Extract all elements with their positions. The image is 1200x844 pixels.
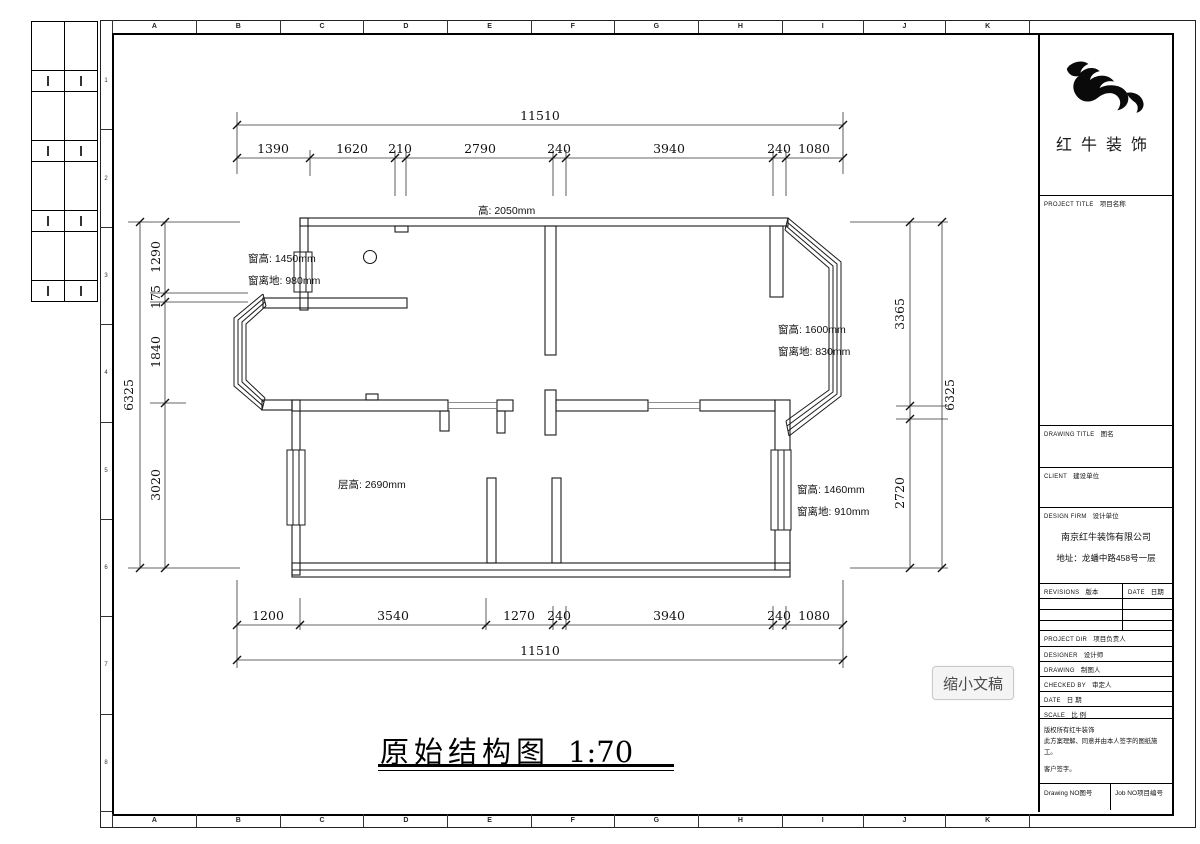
label-date-col-en: DATE [1128, 590, 1145, 596]
label-checked-by-zh: 审定人 [1092, 682, 1112, 689]
client-cell: CLIENT建设单位 [1040, 467, 1172, 507]
dim-label: 240 [767, 608, 791, 623]
label-date-en: DATE [1044, 698, 1061, 704]
label-designer-en: DESIGNER [1044, 653, 1078, 659]
dim-label: 11510 [520, 643, 560, 658]
label-drawing-zh: 制图人 [1081, 667, 1101, 674]
dim-label: 3365 [892, 298, 907, 330]
label-drawing-no-en: Drawing NO [1044, 790, 1079, 797]
dim-label: 3940 [653, 608, 685, 623]
dim-label: 2790 [464, 141, 496, 156]
checked-by-row: CHECKED BY审定人 [1040, 676, 1172, 691]
project-title-cell: PROJECT TITLE项目名称 [1040, 195, 1172, 425]
revision-row [1040, 598, 1172, 599]
label-revisions-zh: 版本 [1085, 589, 1098, 596]
dimension-labels: 11510 1390 1620 210 2790 240 3940 240 10… [121, 108, 957, 658]
dim-label: 175 [148, 285, 163, 309]
shrink-document-button[interactable]: 缩小文稿 [932, 666, 1014, 700]
label-date-zh: 日 期 [1067, 697, 1082, 704]
dim-label: 240 [547, 141, 571, 156]
label-job-no-zh: 项目编号 [1137, 790, 1163, 797]
drawing-title-cell: DRAWING TITLE图名 [1040, 425, 1172, 467]
label-drawing-en: DRAWING [1044, 668, 1075, 674]
label-project-dir-en: PROJECT DIR [1044, 637, 1087, 643]
label-client-en: CLIENT [1044, 474, 1067, 480]
dim-label: 1840 [148, 336, 163, 368]
title-block: 红牛装饰 PROJECT TITLE项目名称 DRAWING TITLE图名 C… [1038, 33, 1172, 812]
label-drawing-title-zh: 图名 [1101, 431, 1114, 438]
plan-walls [262, 218, 790, 577]
label-job-no-en: Job NO [1115, 790, 1137, 797]
project-dir-row: PROJECT DIR项目负责人 [1040, 630, 1172, 646]
dim-label: 1390 [257, 141, 289, 156]
brand-name: 红牛装饰 [1040, 131, 1172, 155]
dim-label: 240 [767, 141, 791, 156]
copyright-line: 版权所有红牛装饰 [1044, 725, 1169, 736]
company-address: 地址：龙蟠中路458号一层 [1040, 552, 1172, 564]
dim-label: 1270 [503, 608, 535, 623]
dim-label: 6325 [121, 379, 136, 411]
dim-label: 3540 [377, 608, 409, 623]
title-underline-thick [378, 764, 674, 767]
dim-label: 1290 [148, 241, 163, 273]
dim-label: 1080 [798, 141, 830, 156]
dim-label: 11510 [520, 108, 560, 123]
scale-row: SCALE比 例 [1040, 706, 1172, 718]
dimension-ticks [136, 121, 946, 664]
title-underline-thin [378, 770, 674, 771]
label-design-firm-en: DESIGN FIRM [1044, 514, 1087, 520]
column-circle-symbol [364, 251, 377, 264]
label-design-firm-zh: 设计单位 [1093, 513, 1119, 520]
label-drawing-no-zh: 图号 [1079, 790, 1092, 797]
label-project-title-en: PROJECT TITLE [1044, 202, 1094, 208]
dim-label: 1080 [798, 608, 830, 623]
dim-label: 2720 [892, 477, 907, 509]
dim-label: 210 [388, 141, 412, 156]
label-drawing-title-en: DRAWING TITLE [1044, 432, 1095, 438]
drawing-row: DRAWING制图人 [1040, 661, 1172, 676]
floor-plan: 11510 1390 1620 210 2790 240 3940 240 10… [0, 0, 1200, 844]
revision-table: REVISIONS版本 DATE日期 [1040, 583, 1172, 630]
dim-label: 3940 [653, 141, 685, 156]
label-date-col-zh: 日期 [1151, 589, 1164, 596]
annotation-floor-height: 层高: 2690mm [338, 478, 406, 491]
annotation-window: 窗离地: 830mm [778, 345, 851, 358]
number-row: Drawing NO图号 Job NO项目编号 [1040, 783, 1172, 810]
label-checked-by-en: CHECKED BY [1044, 683, 1086, 689]
design-firm-cell: DESIGN FIRM设计单位 南京红牛装饰有限公司 地址：龙蟠中路458号一层 [1040, 507, 1172, 583]
label-revisions-en: REVISIONS [1044, 590, 1079, 596]
brand-cell: 红牛装饰 [1040, 33, 1172, 195]
dim-label: 1200 [252, 608, 284, 623]
annotation-beam-height: 高: 2050mm [478, 204, 535, 217]
annotation-window: 窗高: 1460mm [797, 483, 865, 496]
date-row: DATE日 期 [1040, 691, 1172, 706]
copyright-line: 此方案理解、同意并由本人签字的图纸施工。 [1044, 736, 1169, 758]
annotation-window: 窗高: 1600mm [778, 323, 846, 336]
annotation-window: 窗离地: 980mm [248, 274, 321, 287]
copyright-line: 客户签字。 [1044, 764, 1169, 775]
dim-label: 1620 [336, 141, 368, 156]
annotation-window: 窗高: 1450mm [248, 252, 316, 265]
window-left-low [287, 450, 305, 525]
dim-label: 3020 [148, 469, 163, 501]
label-client-zh: 建设单位 [1073, 473, 1099, 480]
door-openings [448, 403, 700, 409]
label-project-title-zh: 项目名称 [1100, 201, 1126, 208]
company-name: 南京红牛装饰有限公司 [1040, 530, 1172, 543]
revision-row [1040, 620, 1172, 621]
dim-label: 6325 [942, 379, 957, 411]
red-bull-logo-icon [1058, 51, 1154, 125]
revision-table-divider [1122, 584, 1123, 630]
bay-window-left [234, 294, 266, 410]
label-project-dir-zh: 项目负责人 [1093, 636, 1126, 643]
drawing-sheet: A B C D E F G H I J K A B C D E F G H I … [0, 0, 1200, 844]
annotation-window: 窗离地: 910mm [797, 505, 870, 518]
window-right-low [771, 450, 791, 530]
revision-row [1040, 609, 1172, 610]
copyright-cell: 版权所有红牛装饰 此方案理解、同意并由本人签字的图纸施工。 客户签字。 [1040, 718, 1172, 783]
label-designer-zh: 设计师 [1084, 652, 1104, 659]
designer-row: DESIGNER设计师 [1040, 646, 1172, 661]
dim-label: 240 [547, 608, 571, 623]
